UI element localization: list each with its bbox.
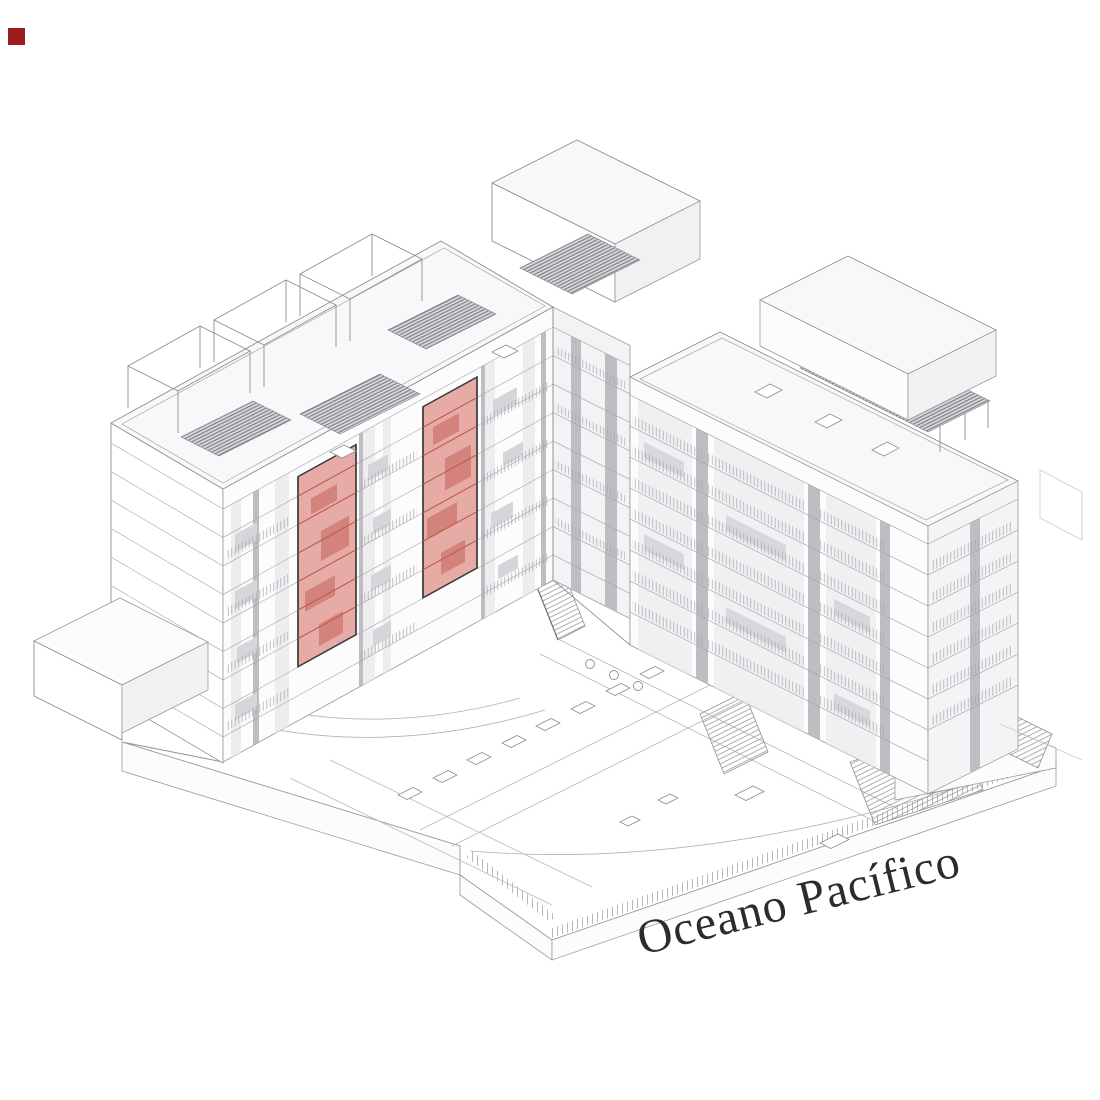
highlight-panel-1 <box>298 445 356 667</box>
architectural-diagram-page: Oceano Pacífico <box>0 0 1100 1100</box>
right-wing-end-face <box>928 481 1018 794</box>
stair-bulkhead <box>492 140 700 302</box>
corner-connector-facade <box>553 307 630 619</box>
axonometric-drawing: Oceano Pacífico <box>0 0 1100 1100</box>
highlight-panel-2 <box>423 377 477 598</box>
red-square-marker <box>8 28 25 45</box>
